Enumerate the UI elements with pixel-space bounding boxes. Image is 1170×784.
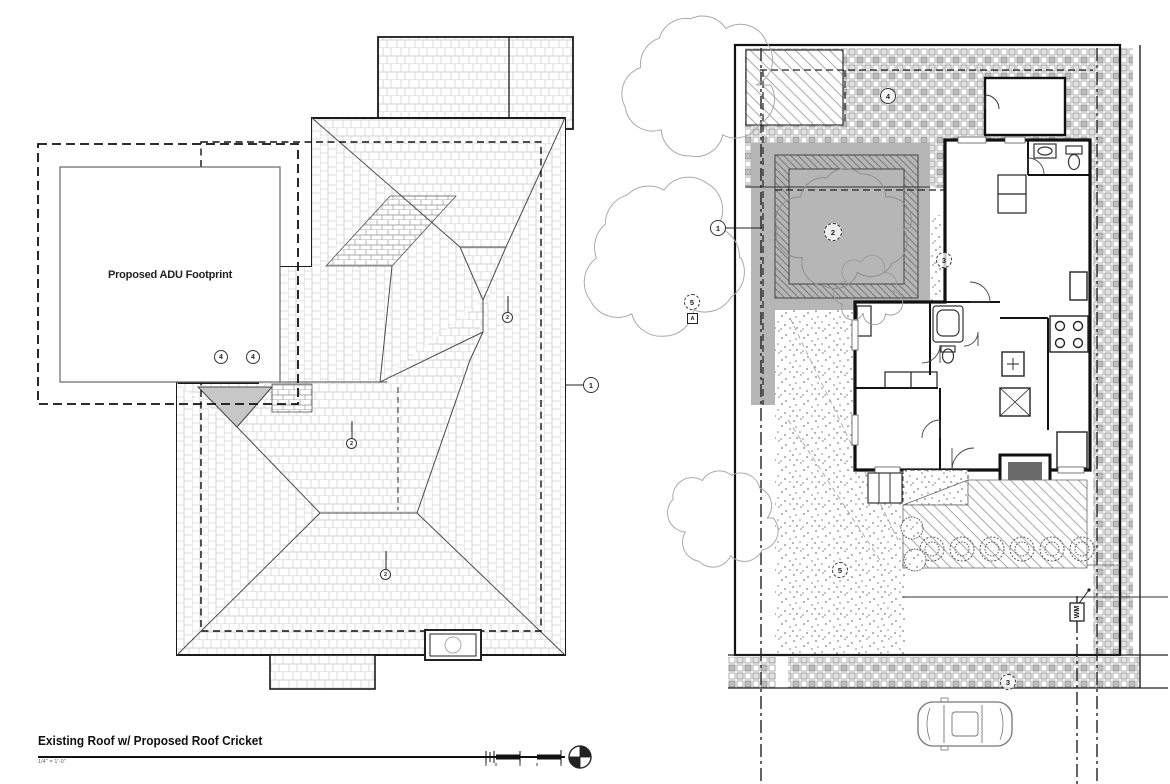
sidewalk-paver-block [728,657,776,688]
architectural-sheet: WM Proposed ADU Footprint Existing Roof … [0,0,1170,784]
tree-canopy [584,177,744,336]
paver-side-walkway [1093,48,1133,655]
drawing-scale-note: 1/4" = 1'-0" [38,759,66,765]
entry-steps [868,470,968,505]
site-plan-drawing: WM [584,16,1168,784]
plan-linework: WM [0,0,1170,784]
shed-structure [985,78,1065,135]
cricket-hatch-strip [272,384,312,412]
roof-keynote-2c: 2 [380,569,391,580]
roof-bump-outline [270,655,375,689]
car-icon [918,698,1012,750]
adu-footprint-label: Proposed ADU Footprint [60,167,280,382]
garage-roof-outline [378,37,573,129]
site-keynote-4: 4 [880,88,896,104]
roof-keynote-4b: 4 [246,350,260,364]
roof-keynote-4a: 4 [214,350,228,364]
site-keynote-A: A [687,313,698,324]
north-arrow-icon [569,746,591,768]
roof-keynote-2a: 2 [502,312,513,323]
adu-inner-area [789,169,904,284]
site-keynote-1: 1 [710,220,726,236]
site-keynote-3: 3 [936,252,952,268]
roof-skylight [425,630,481,660]
site-keynote-5b: 5 [832,562,848,578]
site-keynote-5a: 5 [684,294,700,310]
water-meter-label: WM [1074,606,1081,619]
leader-dot [1087,588,1090,591]
sidewalk-pavers [788,657,1140,688]
roof-plan-drawing [38,37,591,768]
site-keynote-2: 2 [824,223,842,241]
drawing-title: Existing Roof w/ Proposed Roof Cricket [38,734,262,748]
roof-keynote-2b: 2 [346,438,357,449]
roof-keynote-1: 1 [583,377,599,393]
site-keynote-3b: 3 [1000,674,1016,690]
